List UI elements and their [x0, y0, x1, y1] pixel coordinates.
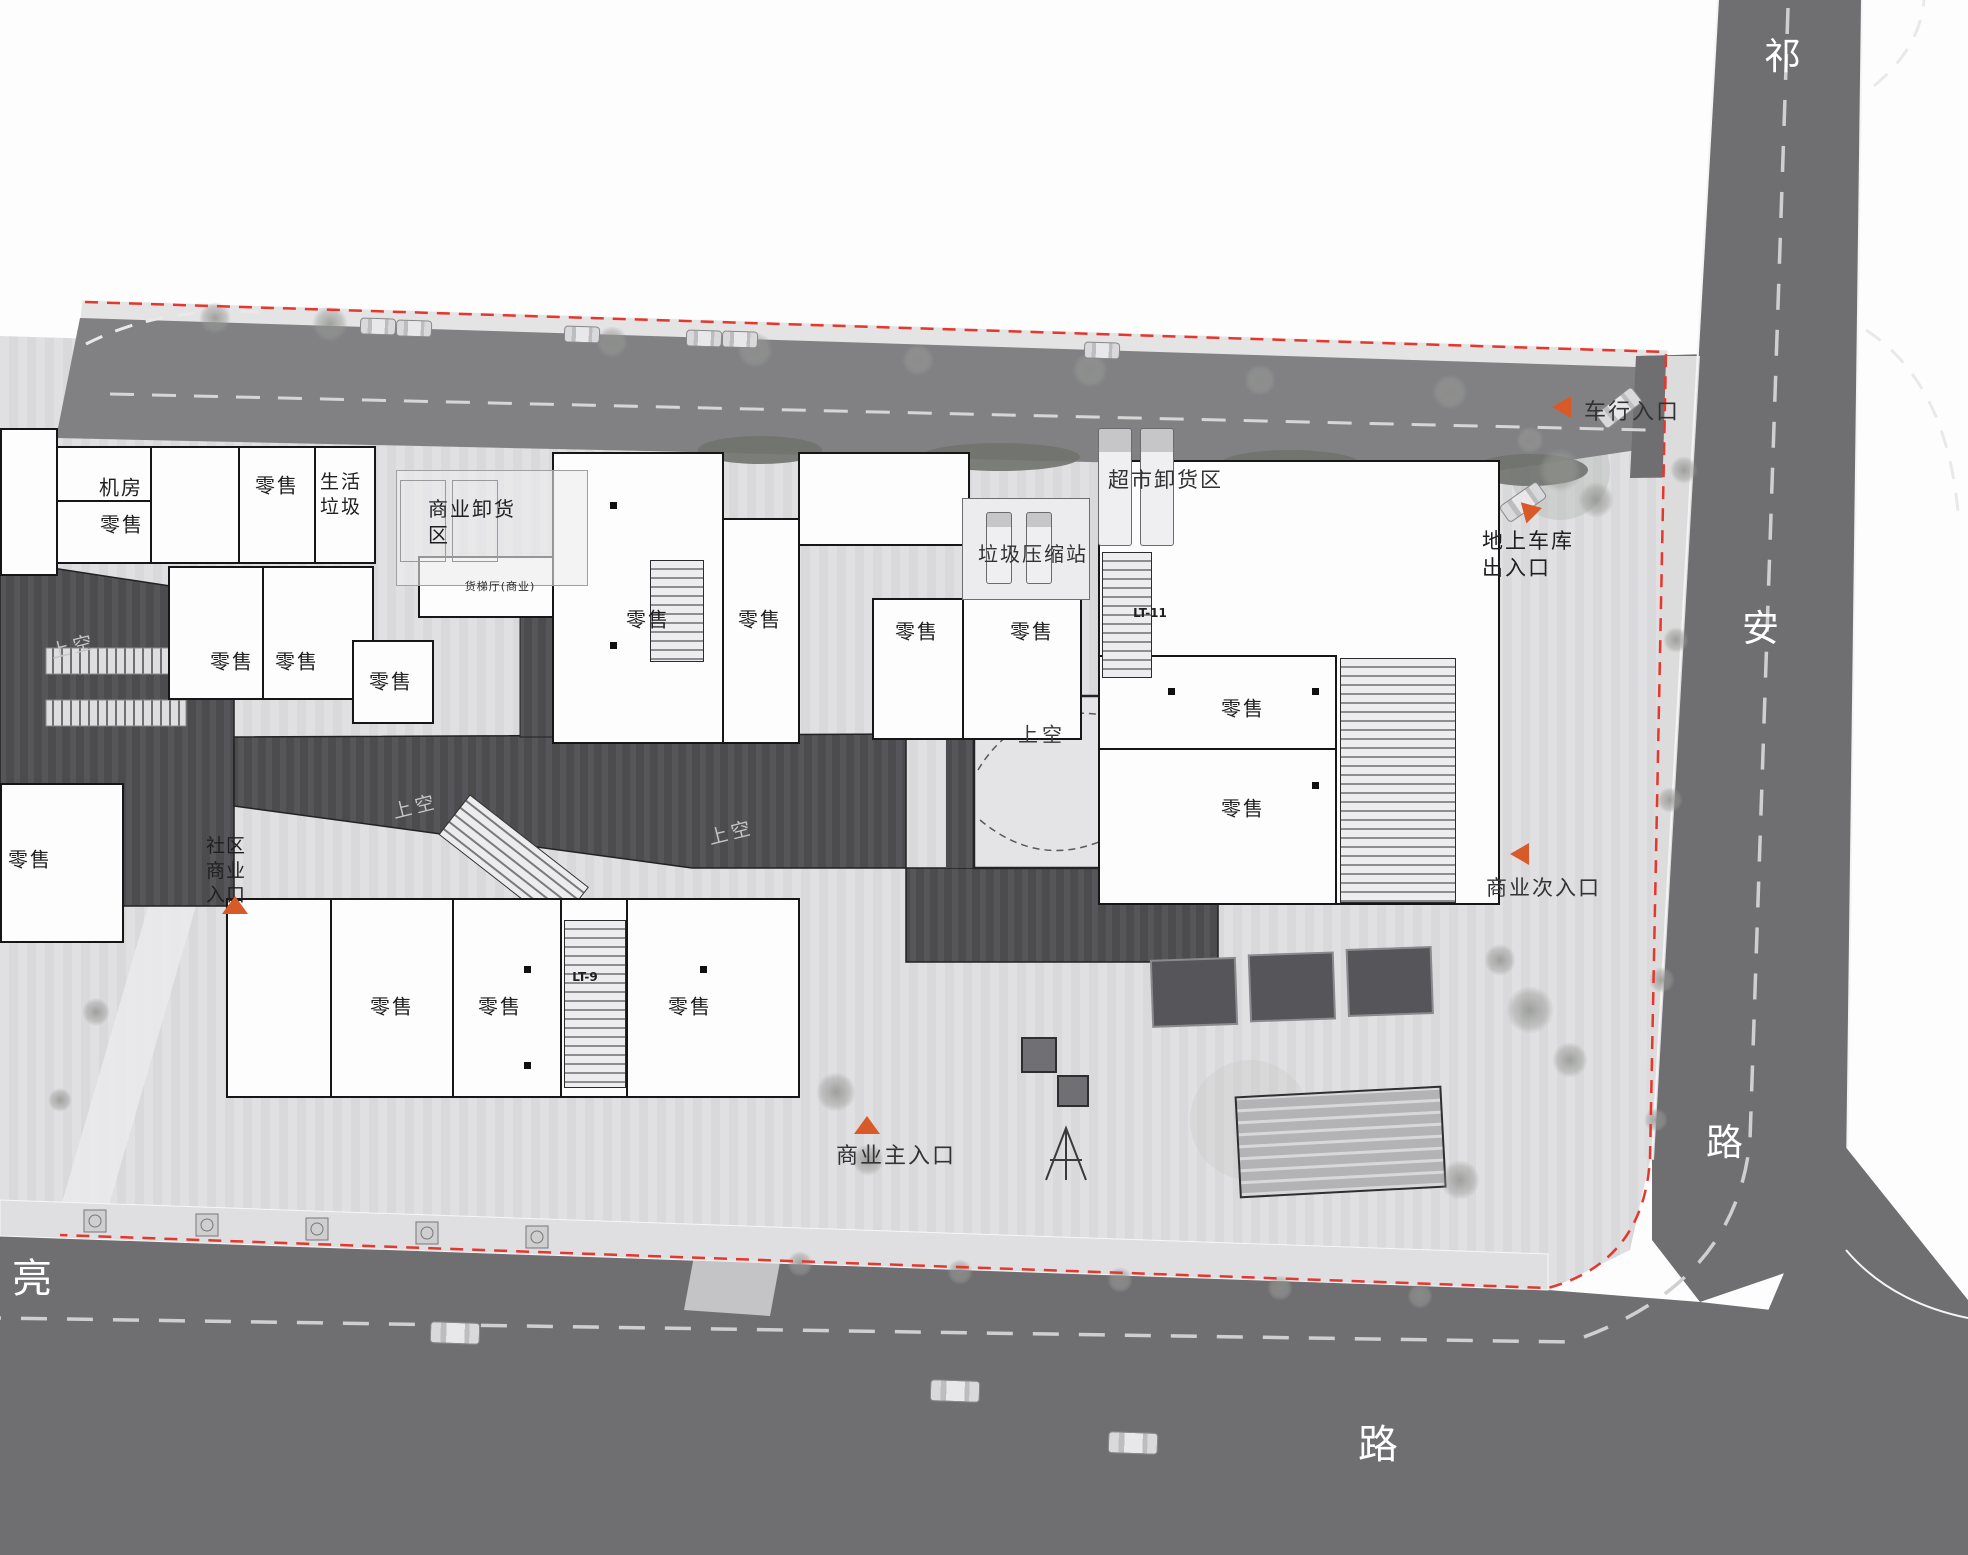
- wall-divider: [150, 446, 152, 564]
- column-dot: [1168, 688, 1175, 695]
- room-label-retail: 零售: [275, 646, 319, 675]
- room-label-retail: 零售: [255, 470, 299, 499]
- column-dot: [524, 1062, 531, 1069]
- wall-divider: [330, 898, 332, 1098]
- room-label-retail: 零售: [1221, 693, 1265, 722]
- room-label-retail: 零售: [626, 604, 670, 633]
- car-icon: [930, 1379, 981, 1403]
- main-entrance-label: 商业主入口: [836, 1138, 956, 1170]
- room-label-retail: 零售: [1221, 793, 1265, 822]
- area-label-commercial-unloading: 商业卸货区: [428, 496, 524, 548]
- room-label-retail: 零售: [668, 991, 712, 1020]
- car-icon: [686, 329, 723, 347]
- road-name-an: 安: [1742, 598, 1779, 652]
- room-label-retail: 零售: [895, 616, 939, 645]
- column-dot: [1312, 782, 1319, 789]
- car-icon: [430, 1321, 481, 1345]
- wall-divider: [560, 898, 562, 1098]
- column-dot: [700, 966, 707, 973]
- vehicle-entrance-label: 车行入口: [1584, 394, 1680, 426]
- column-dot: [610, 502, 617, 509]
- core-label-lt11: LT-11: [1133, 606, 1167, 620]
- wall-divider: [1098, 748, 1335, 750]
- car-icon: [722, 330, 759, 348]
- car-icon: [1084, 341, 1121, 359]
- plan-background-svg: [0, 0, 1968, 1555]
- escalator-icon: [1340, 658, 1456, 903]
- room-label-retail: 零售: [369, 666, 413, 695]
- secondary-entrance-arrow-icon: [1510, 843, 1529, 865]
- site-plan-canvas: 机房 零售 零售 生活垃圾 商业卸货区 货梯厅(商业) 零售 零售 零售 零售 …: [0, 0, 1968, 1555]
- car-icon: [360, 317, 397, 335]
- secondary-entrance-label: 商业次入口: [1486, 872, 1601, 902]
- building-block: [798, 452, 970, 546]
- area-label-supermarket-unloading: 超市卸货区: [1108, 464, 1223, 494]
- building-block: [168, 566, 374, 700]
- area-label-garbage-station: 垃圾压缩站: [978, 538, 1088, 567]
- building-block: [238, 446, 316, 564]
- column-dot: [610, 642, 617, 649]
- stair-icon: [564, 920, 626, 1088]
- car-icon: [564, 325, 601, 343]
- wall-divider: [452, 898, 454, 1098]
- building-block: [0, 428, 58, 576]
- vehicle-entrance-arrow-icon: [1552, 396, 1571, 418]
- road-name-qi: 祁: [1764, 26, 1801, 80]
- room-label-retail: 零售: [370, 991, 414, 1020]
- room-label-domestic-waste: 生活垃圾: [320, 470, 366, 519]
- main-entrance-arrow-icon: [854, 1116, 880, 1134]
- road-name-liang: 亮: [12, 1246, 52, 1304]
- car-icon: [1108, 1431, 1159, 1455]
- garage-entrance-label: 地上车库出入口: [1482, 528, 1578, 583]
- wall-divider: [262, 566, 264, 700]
- road-name-lu-south: 路: [1358, 1412, 1398, 1470]
- room-label-retail: 零售: [8, 844, 52, 873]
- room-label-machine-room: 机房: [99, 472, 143, 501]
- car-icon: [396, 319, 433, 337]
- community-entrance-arrow-icon: [222, 896, 248, 914]
- core-label-lt9: LT-9: [572, 970, 597, 984]
- void-label: 上空: [1018, 719, 1066, 748]
- room-label-retail: 零售: [100, 509, 144, 538]
- room-label-retail: 零售: [738, 604, 782, 633]
- wall-divider: [626, 898, 628, 1098]
- room-label-freight-lobby: 货梯厅(商业): [465, 578, 536, 594]
- column-dot: [1312, 688, 1319, 695]
- building-block: [56, 446, 240, 564]
- column-dot: [524, 966, 531, 973]
- room-label-retail: 零售: [1010, 616, 1054, 645]
- road-name-lu-east: 路: [1706, 1112, 1743, 1166]
- room-label-retail: 零售: [478, 991, 522, 1020]
- room-label-retail: 零售: [210, 646, 254, 675]
- wall-divider: [1335, 655, 1337, 905]
